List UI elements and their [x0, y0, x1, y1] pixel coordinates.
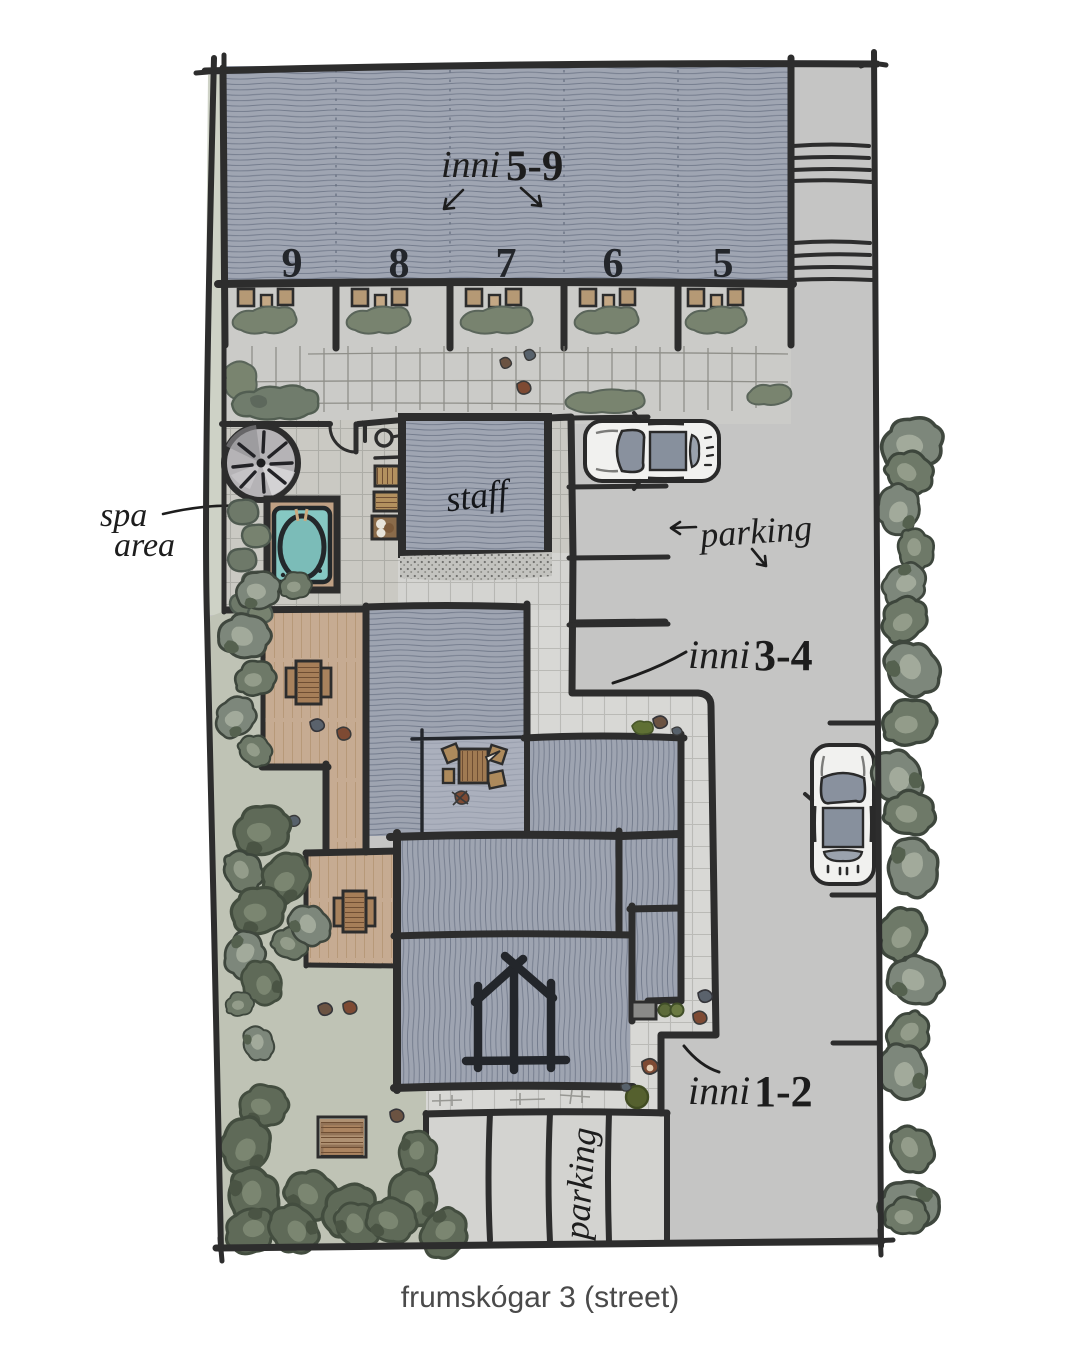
svg-text:9: 9: [282, 241, 303, 287]
svg-text:8: 8: [389, 241, 410, 287]
svg-text:inni: inni: [441, 144, 500, 186]
svg-text:3-4: 3-4: [754, 631, 813, 680]
svg-text:parking: parking: [556, 1126, 604, 1244]
svg-text:5-9: 5-9: [506, 143, 563, 190]
svg-text:area: area: [114, 527, 175, 564]
svg-text:staff: staff: [444, 472, 515, 520]
svg-text:7: 7: [496, 241, 517, 287]
svg-text:frumskógar 3 (street): frumskógar 3 (street): [401, 1281, 679, 1314]
svg-text:inni: inni: [688, 1068, 750, 1113]
svg-text:inni: inni: [688, 632, 750, 677]
svg-text:5: 5: [713, 241, 734, 287]
svg-text:parking: parking: [696, 507, 814, 555]
svg-text:1-2: 1-2: [754, 1067, 813, 1116]
svg-text:6: 6: [603, 241, 624, 287]
